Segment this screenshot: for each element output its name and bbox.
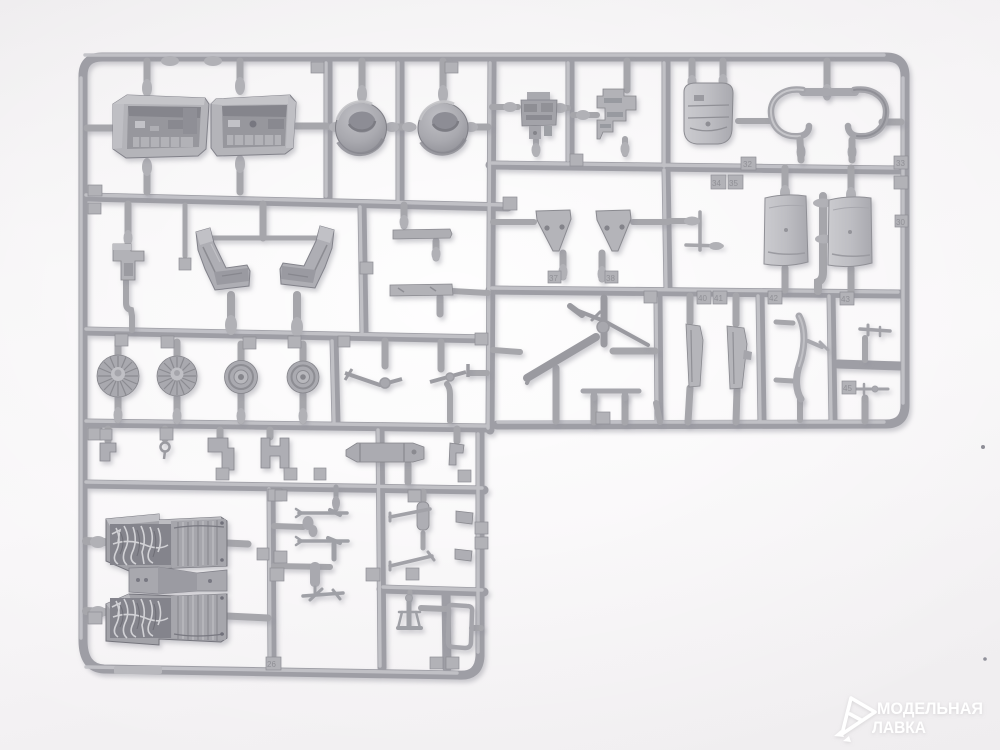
svg-text:МОДЕЛЬНАЯ: МОДЕЛЬНАЯ <box>877 700 983 718</box>
svg-text:45: 45 <box>843 384 852 393</box>
svg-text:26: 26 <box>267 660 276 669</box>
svg-text:37: 37 <box>549 274 558 283</box>
svg-text:34: 34 <box>712 179 721 188</box>
svg-text:43: 43 <box>841 295 850 304</box>
svg-text:ЛАВКА: ЛАВКА <box>872 719 926 737</box>
svg-text:38: 38 <box>606 274 615 283</box>
svg-text:42: 42 <box>769 294 778 303</box>
svg-text:30: 30 <box>896 218 905 227</box>
svg-text:33: 33 <box>896 159 905 168</box>
svg-text:32: 32 <box>743 160 752 169</box>
svg-text:41: 41 <box>714 294 723 303</box>
svg-text:40: 40 <box>698 294 707 303</box>
svg-text:35: 35 <box>729 179 738 188</box>
